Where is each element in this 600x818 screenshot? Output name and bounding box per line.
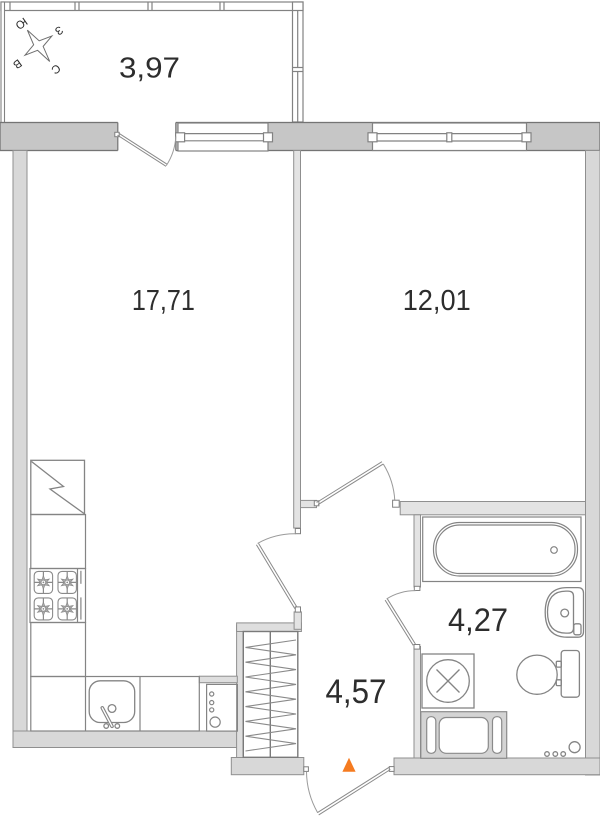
svg-text:З: З — [52, 23, 65, 37]
svg-text:Ю: Ю — [12, 15, 29, 32]
svg-text:17,71: 17,71 — [132, 285, 195, 317]
svg-text:4,27: 4,27 — [448, 602, 508, 638]
svg-text:4,57: 4,57 — [326, 673, 387, 711]
svg-text:3,97: 3,97 — [119, 53, 180, 85]
svg-text:С: С — [49, 61, 63, 76]
svg-text:12,01: 12,01 — [403, 285, 471, 317]
svg-text:В: В — [10, 56, 23, 70]
